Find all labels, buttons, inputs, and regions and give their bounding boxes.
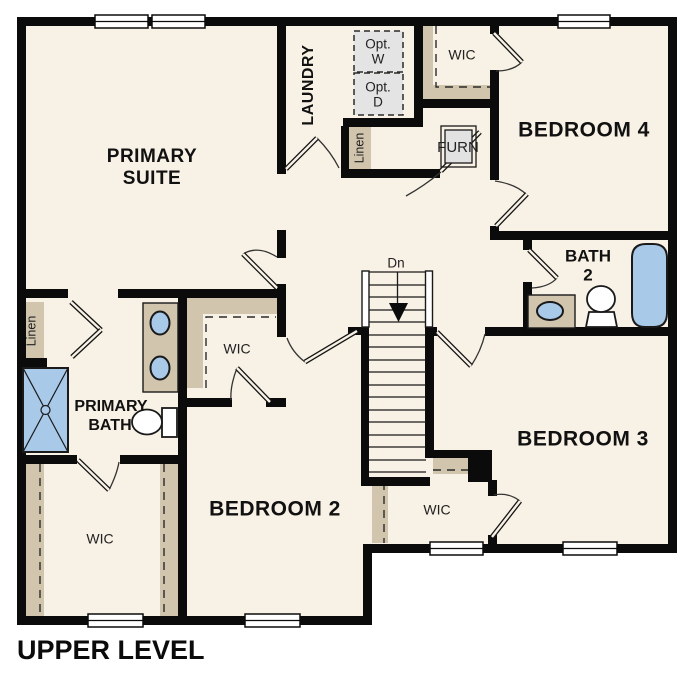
opt-washer-label-line1: Opt. xyxy=(365,37,391,52)
wall-segment xyxy=(425,327,434,452)
wall-segment xyxy=(118,289,277,298)
wic-hall-label: WIC xyxy=(223,341,250,357)
wic-primary-shelf-right xyxy=(160,464,178,616)
wic-hall-shelf-left xyxy=(187,298,203,388)
primary-suite-label-line1: PRIMARY xyxy=(107,146,197,167)
furnace-label: FURN xyxy=(437,139,479,156)
shower xyxy=(23,368,68,452)
floor xyxy=(17,17,677,625)
opt-dryer-label-line2: D xyxy=(373,95,383,110)
wall-segment xyxy=(425,450,468,458)
wall-segment xyxy=(277,230,286,258)
wall-segment xyxy=(485,327,668,336)
wall-segment xyxy=(26,358,47,367)
primary-vanity-double-sink xyxy=(143,303,178,392)
laundry-label: LAUNDRY xyxy=(300,44,317,125)
wall-segment xyxy=(668,17,677,553)
window xyxy=(245,614,300,627)
wall-segment xyxy=(277,26,286,174)
wall-segment xyxy=(488,480,497,496)
window xyxy=(558,15,610,28)
primary-suite-label-line2: SUITE xyxy=(123,168,181,189)
wall-segment xyxy=(26,289,68,298)
linen-hall-label: Linen xyxy=(352,133,366,164)
bath2-toilet xyxy=(586,286,617,327)
floor-plan-drawing: PRIMARY SUITE LAUNDRY Opt. W Opt. D WIC … xyxy=(0,0,687,687)
stairs-down-label: Dn xyxy=(387,256,404,271)
window xyxy=(430,542,483,555)
primary-bath-label-line2: BATH xyxy=(88,417,131,434)
wall-segment xyxy=(363,544,372,625)
wall-segment xyxy=(361,327,369,485)
bathtub xyxy=(632,244,667,327)
wall-segment xyxy=(343,118,423,127)
wic-primary-shelf-left xyxy=(26,464,44,616)
wall-segment xyxy=(361,477,430,486)
wall-segment xyxy=(363,544,677,553)
opt-washer-label-line2: W xyxy=(372,52,385,67)
wall-segment xyxy=(414,26,423,127)
bedroom3-label: BEDROOM 3 xyxy=(517,428,649,451)
wic-bedroom3-shelf-top xyxy=(433,458,468,474)
wic-primary-label: WIC xyxy=(86,531,113,547)
wall-segment xyxy=(490,70,499,180)
wall-segment xyxy=(420,99,499,108)
primary-bath-label-line1: PRIMARY xyxy=(74,398,148,415)
wall-segment xyxy=(26,455,77,464)
bath2-label-line2: 2 xyxy=(583,265,592,284)
bath2-label-line1: BATH xyxy=(565,246,611,265)
wall-segment xyxy=(187,398,232,407)
stair-railing-left xyxy=(362,271,369,327)
bedroom2-label: BEDROOM 2 xyxy=(209,498,341,521)
linen-primary-label: Linen xyxy=(24,316,38,347)
floor-plan-page: PRIMARY SUITE LAUNDRY Opt. W Opt. D WIC … xyxy=(0,0,687,687)
wall-segment xyxy=(17,616,372,625)
stair-railing-right xyxy=(426,271,433,327)
opt-dryer-label-line1: Opt. xyxy=(365,80,391,95)
wall-segment xyxy=(277,297,286,337)
wall-segment xyxy=(341,169,440,178)
window xyxy=(152,15,205,28)
window xyxy=(88,614,143,627)
wic-bedroom3-label: WIC xyxy=(423,502,450,518)
window xyxy=(563,542,617,555)
bedroom4-label: BEDROOM 4 xyxy=(518,119,650,142)
chase-block xyxy=(468,450,492,482)
bath2-vanity-sink xyxy=(528,295,575,328)
window xyxy=(95,15,148,28)
wic-bedroom3-shelf-left xyxy=(372,482,388,543)
wall-segment xyxy=(491,231,668,240)
wic-bedroom4-label: WIC xyxy=(448,47,475,63)
plan-title: UPPER LEVEL xyxy=(17,635,205,665)
wall-segment xyxy=(120,455,187,464)
